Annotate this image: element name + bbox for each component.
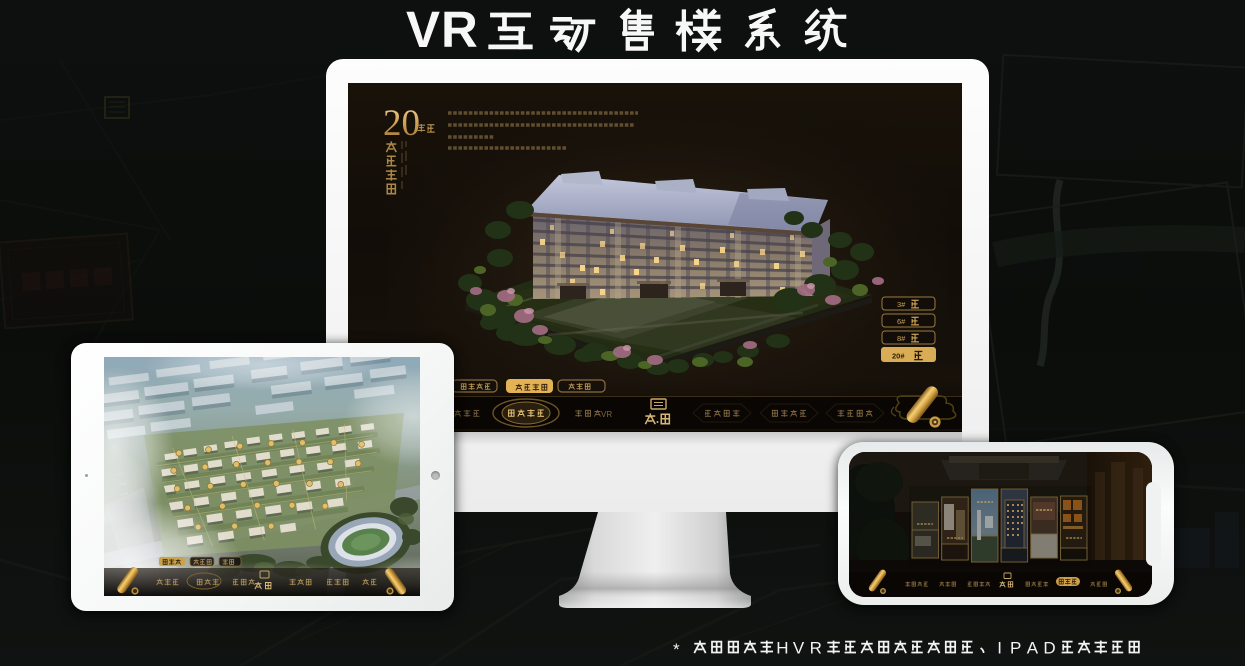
svg-text:3#: 3#: [897, 300, 906, 309]
svg-text:*: *: [673, 640, 680, 659]
svg-text:H: H: [776, 639, 788, 658]
svg-text:20#: 20#: [892, 352, 905, 361]
svg-text:VR: VR: [601, 410, 612, 419]
svg-text:6#: 6#: [897, 317, 906, 326]
svg-text:I: I: [997, 639, 1002, 658]
svg-text:A: A: [1027, 639, 1039, 658]
svg-text:VR: VR: [406, 1, 479, 58]
svg-text:20: 20: [383, 103, 420, 144]
svg-text:R: R: [810, 639, 822, 658]
svg-text:V: V: [793, 639, 805, 658]
svg-text:P: P: [1010, 639, 1021, 658]
svg-text:D: D: [1043, 639, 1055, 658]
svg-text:8#: 8#: [897, 334, 906, 343]
